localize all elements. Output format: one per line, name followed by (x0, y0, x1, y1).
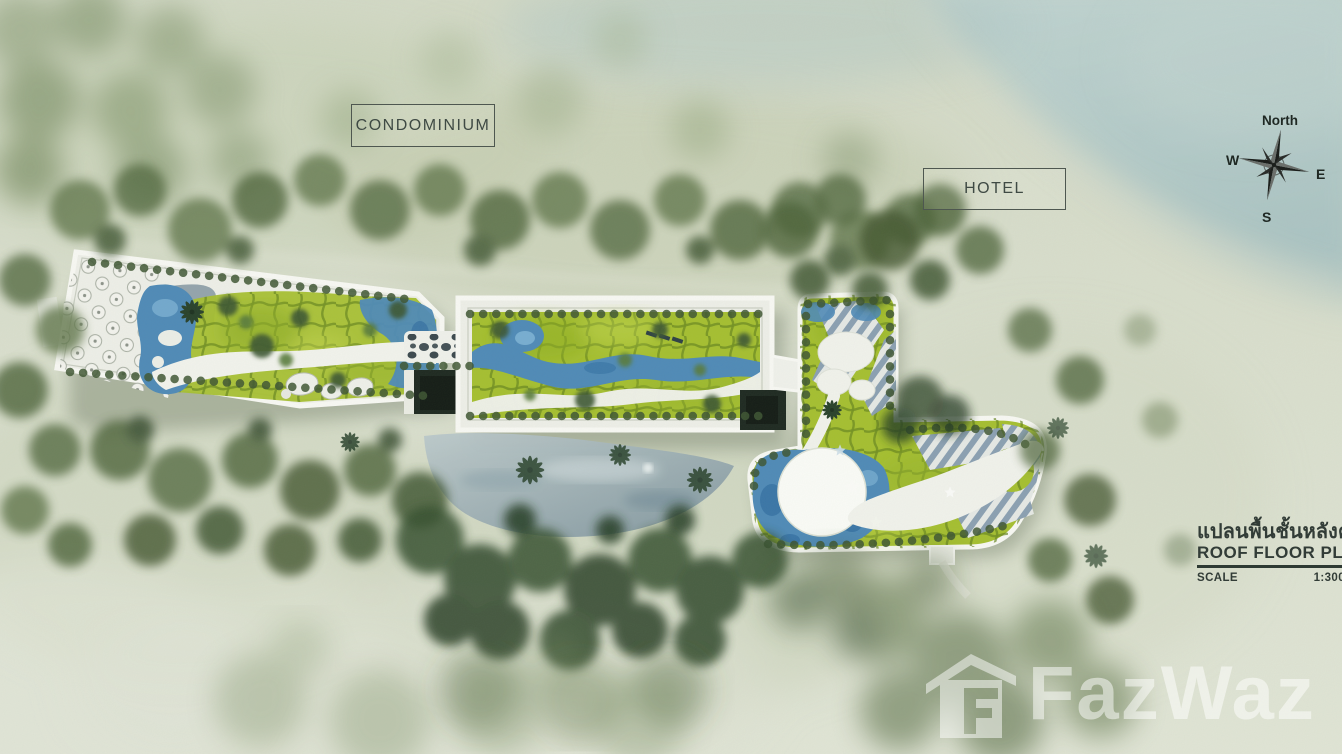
scale-row: SCALE 1:300 (1197, 572, 1342, 584)
plan-title-english: ROOF FLOOR PLAN (1197, 544, 1342, 562)
title-block: แปลนพื้นชั้นหลังคา ROOF FLOOR PLAN SCALE… (1197, 520, 1342, 584)
site-plan-illustration (0, 0, 1342, 754)
hotel-label-text: HOTEL (964, 180, 1025, 198)
compass-north-label: North (1262, 113, 1298, 128)
hotel-label: HOTEL (923, 168, 1066, 210)
title-divider (1197, 565, 1342, 568)
compass-south-label: S (1262, 209, 1271, 225)
condominium-label: CONDOMINIUM (351, 104, 495, 147)
compass-star (1232, 123, 1316, 207)
compass-west-label: W (1226, 152, 1240, 168)
plan-title-thai: แปลนพื้นชั้นหลังคา (1197, 520, 1342, 544)
paper-grain (0, 0, 1342, 754)
compass-east-label: E (1316, 166, 1325, 182)
condominium-label-text: CONDOMINIUM (356, 117, 491, 135)
roof-floor-plan-image: CONDOMINIUM HOTEL North W E S แปลนพื้นชั… (0, 0, 1342, 754)
compass-rose-icon: North W E S (1222, 103, 1334, 231)
scale-value: 1:300 (1314, 572, 1342, 584)
scale-label: SCALE (1197, 572, 1238, 584)
